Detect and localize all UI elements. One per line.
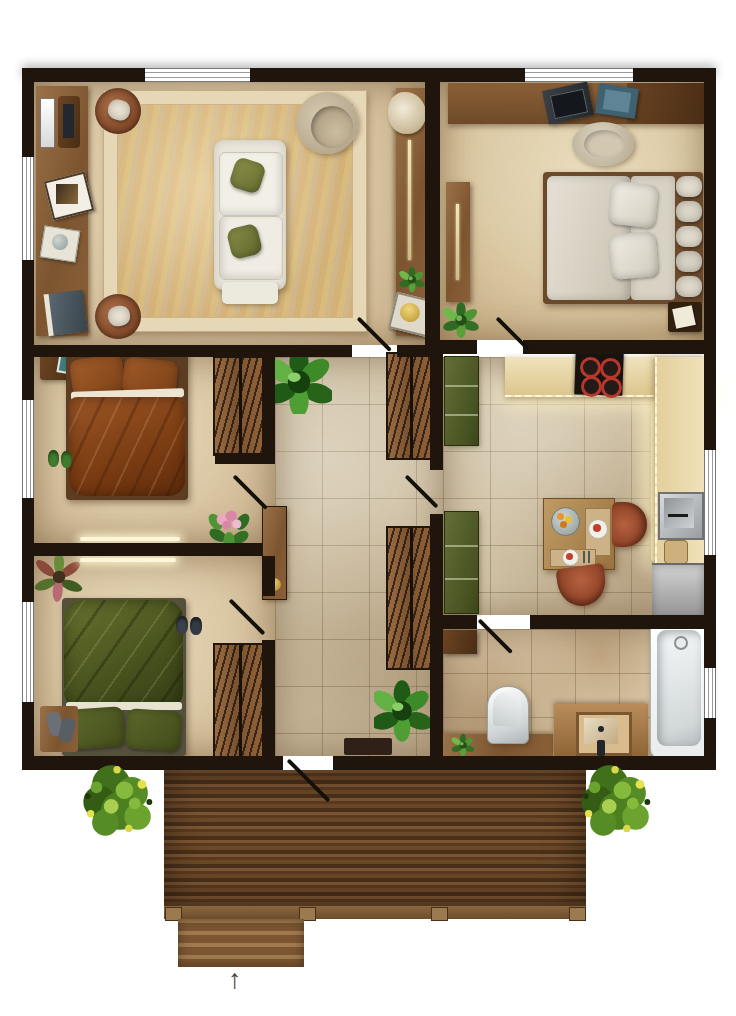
entry-arrow: ↑ — [228, 966, 242, 993]
hall-plant-top — [266, 350, 332, 414]
hall-wardrobe-top — [388, 354, 432, 458]
vanity-drain — [598, 726, 604, 732]
window-right-kitchen — [704, 450, 716, 555]
bath-cabinet — [443, 630, 477, 654]
deck-edge — [164, 906, 586, 919]
hall-wardrobe-bottom — [388, 528, 432, 668]
hall-plant-bottom — [374, 680, 430, 742]
cabinet-seam — [445, 545, 478, 547]
picture-art — [56, 184, 78, 204]
cabinet-seam — [445, 414, 478, 416]
cabinet-seam — [445, 578, 478, 580]
cup — [52, 234, 68, 250]
wardrobe-handle — [456, 204, 459, 280]
papasan-cushion — [311, 106, 353, 148]
wall-exterior-right — [704, 68, 716, 770]
dishwasher — [652, 563, 704, 620]
bush-right — [572, 758, 664, 846]
book — [44, 290, 88, 336]
tub-drain — [674, 636, 688, 650]
wall-bedroom-south — [430, 340, 477, 354]
sofa-ottoman — [222, 282, 278, 304]
fruit — [560, 521, 567, 528]
wall-bath-north — [443, 615, 477, 629]
burner — [581, 376, 602, 397]
cabinet-handle — [408, 140, 411, 260]
slipper — [61, 451, 72, 468]
window-right-bathroom — [704, 668, 716, 718]
slipper — [48, 450, 59, 467]
window-left-bedroom2 — [22, 400, 34, 498]
window-left-living — [22, 157, 34, 260]
window-top-bedroom — [525, 68, 633, 82]
headboard-cushion — [676, 276, 702, 297]
wall-living-south — [22, 345, 352, 357]
headboard-cushion — [676, 176, 702, 197]
slipper — [176, 616, 188, 634]
food — [593, 524, 601, 532]
wall-hall-kitchen — [430, 514, 443, 615]
bed-green-duvet — [64, 600, 183, 710]
blue-folder-inner — [603, 89, 632, 112]
wall-wardrobe-stub — [215, 453, 275, 464]
bed-pillow — [608, 231, 659, 280]
food — [566, 553, 573, 560]
burner — [601, 377, 622, 398]
green-cabinet — [445, 357, 478, 445]
sliding-wardrobe — [215, 645, 262, 756]
papers — [672, 305, 696, 329]
wall-bedrooms-divider — [22, 543, 262, 556]
toilet-lid — [493, 692, 521, 726]
floor-plant — [441, 301, 481, 339]
fruit — [557, 513, 564, 520]
bush-left — [76, 756, 164, 848]
wall-bedroom-south — [523, 340, 704, 354]
wall-bath-north — [530, 615, 704, 629]
deck-post — [432, 908, 447, 920]
deck-post — [570, 908, 585, 920]
sink-faucet — [668, 514, 688, 517]
bed-pillow — [608, 181, 659, 229]
wall-bedroom2-east — [262, 357, 275, 453]
green-cabinet — [445, 512, 478, 613]
headboard-cushion — [676, 251, 702, 272]
desk-chair-seat — [584, 130, 624, 158]
wall-bath-west — [430, 615, 443, 756]
window-left-bedroom3 — [22, 602, 34, 702]
window-top-living — [145, 68, 250, 82]
wall-bedroom3-east — [262, 640, 275, 756]
headboard-cushion — [676, 201, 702, 222]
deck-steps — [178, 919, 304, 967]
doormat — [344, 738, 392, 755]
floor-plan: ↑ — [0, 0, 736, 1016]
knife — [588, 551, 590, 563]
remote — [63, 104, 74, 138]
burner — [600, 358, 621, 379]
vanity-faucet — [597, 740, 605, 756]
slipper — [190, 617, 202, 635]
sink-basin — [664, 498, 694, 528]
wall-living-bedroom — [425, 82, 440, 357]
sliding-wardrobe — [215, 358, 262, 454]
bed-pillow — [125, 708, 183, 752]
headboard-cushion — [676, 226, 702, 247]
deck-floor — [164, 770, 586, 906]
cutting-board — [664, 540, 688, 564]
bed-brown-duvet — [69, 397, 185, 496]
bath-plant — [450, 733, 476, 757]
burner — [580, 357, 601, 378]
cloth-basket — [388, 92, 426, 134]
wall-light — [80, 537, 180, 541]
wall-bedroom3-east — [262, 556, 275, 596]
fork — [583, 551, 585, 563]
cabinet-seam — [445, 385, 478, 387]
wall-light — [80, 558, 176, 562]
succulent-plant — [398, 266, 426, 293]
wall-hall-kitchen — [430, 354, 443, 470]
red-green-plant — [34, 550, 84, 604]
tv — [40, 98, 55, 148]
